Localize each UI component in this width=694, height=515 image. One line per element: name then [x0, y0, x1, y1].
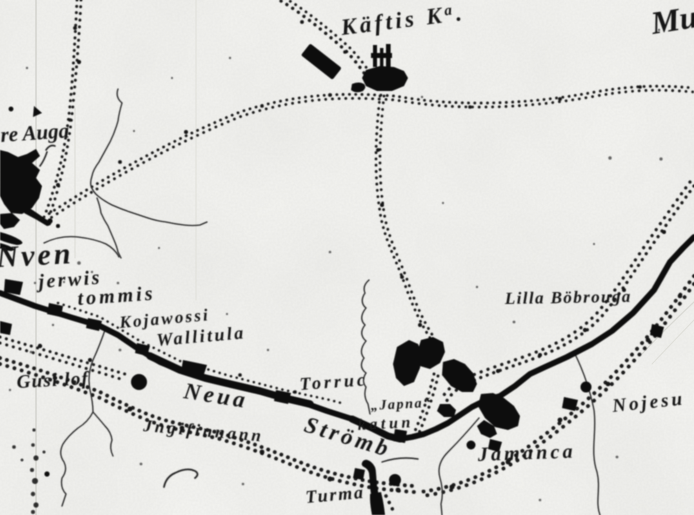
svg-text:katun: katun — [357, 414, 414, 434]
svg-text:re Auga: re Auga — [0, 118, 70, 147]
svg-text:Lilla Böbrouga: Lilla Böbrouga — [504, 287, 632, 308]
svg-text:Gusi lof: Gusi lof — [16, 368, 90, 393]
svg-text:Mu: Mu — [647, 0, 694, 41]
svg-text:„Japna“: „Japna“ — [370, 396, 432, 414]
svg-text:Jamanca: Jamanca — [476, 441, 576, 466]
